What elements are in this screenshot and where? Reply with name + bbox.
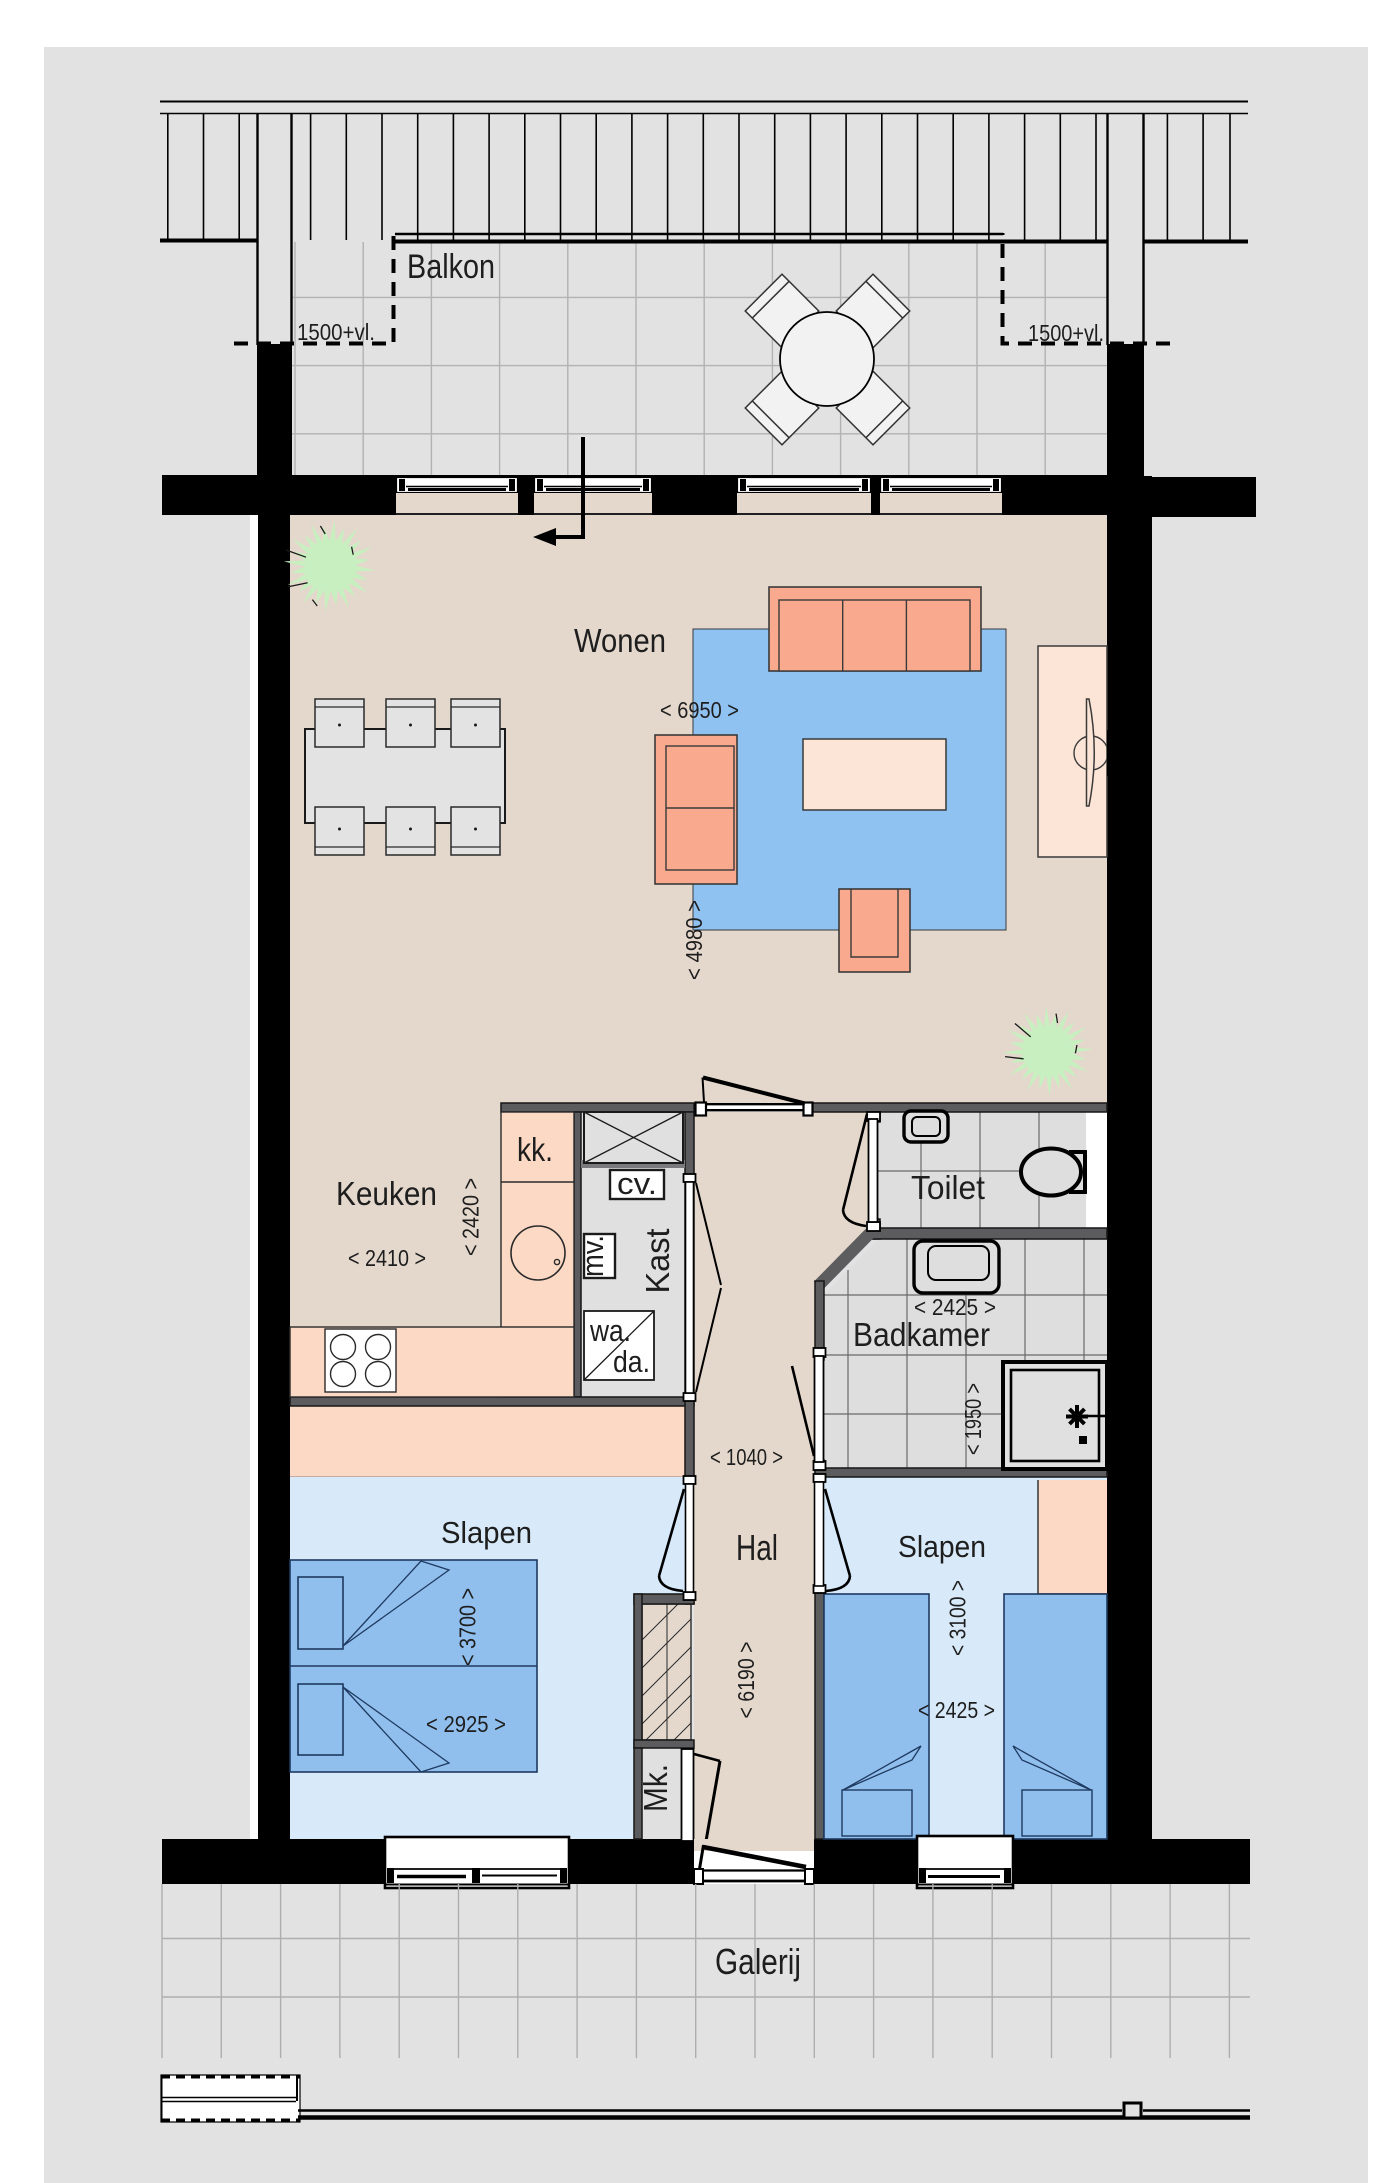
svg-text:Galerij: Galerij: [715, 1941, 801, 1982]
svg-text:< 3700 >: < 3700 >: [455, 1588, 481, 1666]
svg-text:mv.: mv.: [575, 1235, 610, 1277]
svg-text:Badkamer: Badkamer: [853, 1316, 990, 1353]
svg-text:< 1950 >: < 1950 >: [960, 1383, 986, 1455]
svg-text:Slapen: Slapen: [441, 1515, 532, 1550]
svg-text:< 2420 >: < 2420 >: [458, 1178, 484, 1256]
svg-text:Toilet: Toilet: [911, 1169, 985, 1206]
svg-text:Mk.: Mk.: [637, 1764, 674, 1812]
svg-text:1500+vl.: 1500+vl.: [1028, 320, 1104, 346]
svg-text:Balkon: Balkon: [407, 248, 495, 286]
svg-text:Slapen: Slapen: [898, 1529, 986, 1564]
svg-text:1500+vl.: 1500+vl.: [297, 319, 375, 345]
svg-text:Keuken: Keuken: [336, 1175, 437, 1212]
svg-text:Wonen: Wonen: [574, 622, 666, 659]
svg-text:< 2410 >: < 2410 >: [348, 1245, 426, 1271]
svg-text:< 3100 >: < 3100 >: [945, 1580, 971, 1656]
svg-text:wa.: wa.: [589, 1313, 631, 1348]
svg-text:cv.: cv.: [617, 1166, 657, 1201]
svg-text:< 2925 >: < 2925 >: [426, 1711, 506, 1737]
svg-text:Hal: Hal: [736, 1527, 778, 1568]
svg-text:da.: da.: [613, 1344, 650, 1379]
svg-text:< 6950 >: < 6950 >: [660, 697, 739, 723]
svg-text:< 6190 >: < 6190 >: [733, 1642, 759, 1719]
svg-text:< 4980 >: < 4980 >: [681, 900, 707, 980]
svg-text:< 2425 >: < 2425 >: [918, 1697, 995, 1723]
svg-text:kk.: kk.: [517, 1131, 553, 1168]
svg-text:Kast: Kast: [639, 1229, 676, 1294]
svg-text:< 1040 >: < 1040 >: [710, 1444, 783, 1470]
